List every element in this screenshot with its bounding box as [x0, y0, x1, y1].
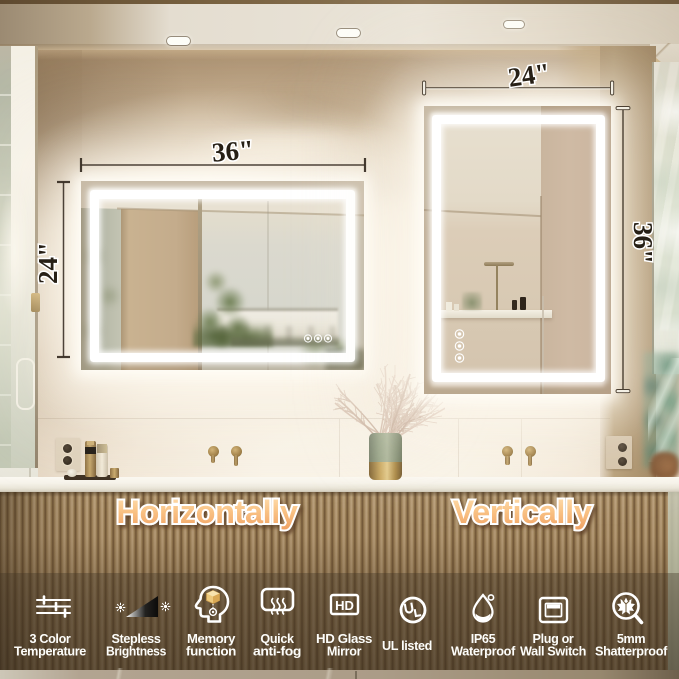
svg-text:Shatterproof: Shatterproof [595, 645, 668, 659]
svg-text:Temperature: Temperature [14, 645, 86, 659]
svg-text:UL listed: UL listed [382, 639, 432, 653]
svg-text:function: function [186, 645, 236, 659]
svg-text:anti-fog: anti-fog [253, 645, 301, 659]
svg-text:Vertically: Vertically [453, 494, 592, 530]
svg-text:Wall Switch: Wall Switch [520, 645, 586, 659]
svg-text:Waterproof: Waterproof [451, 645, 516, 659]
svg-text:Horizontally: Horizontally [116, 494, 298, 530]
svg-text:Brightness: Brightness [106, 645, 166, 659]
svg-text:HD: HD [335, 598, 354, 613]
svg-text:Mirror: Mirror [327, 645, 362, 659]
